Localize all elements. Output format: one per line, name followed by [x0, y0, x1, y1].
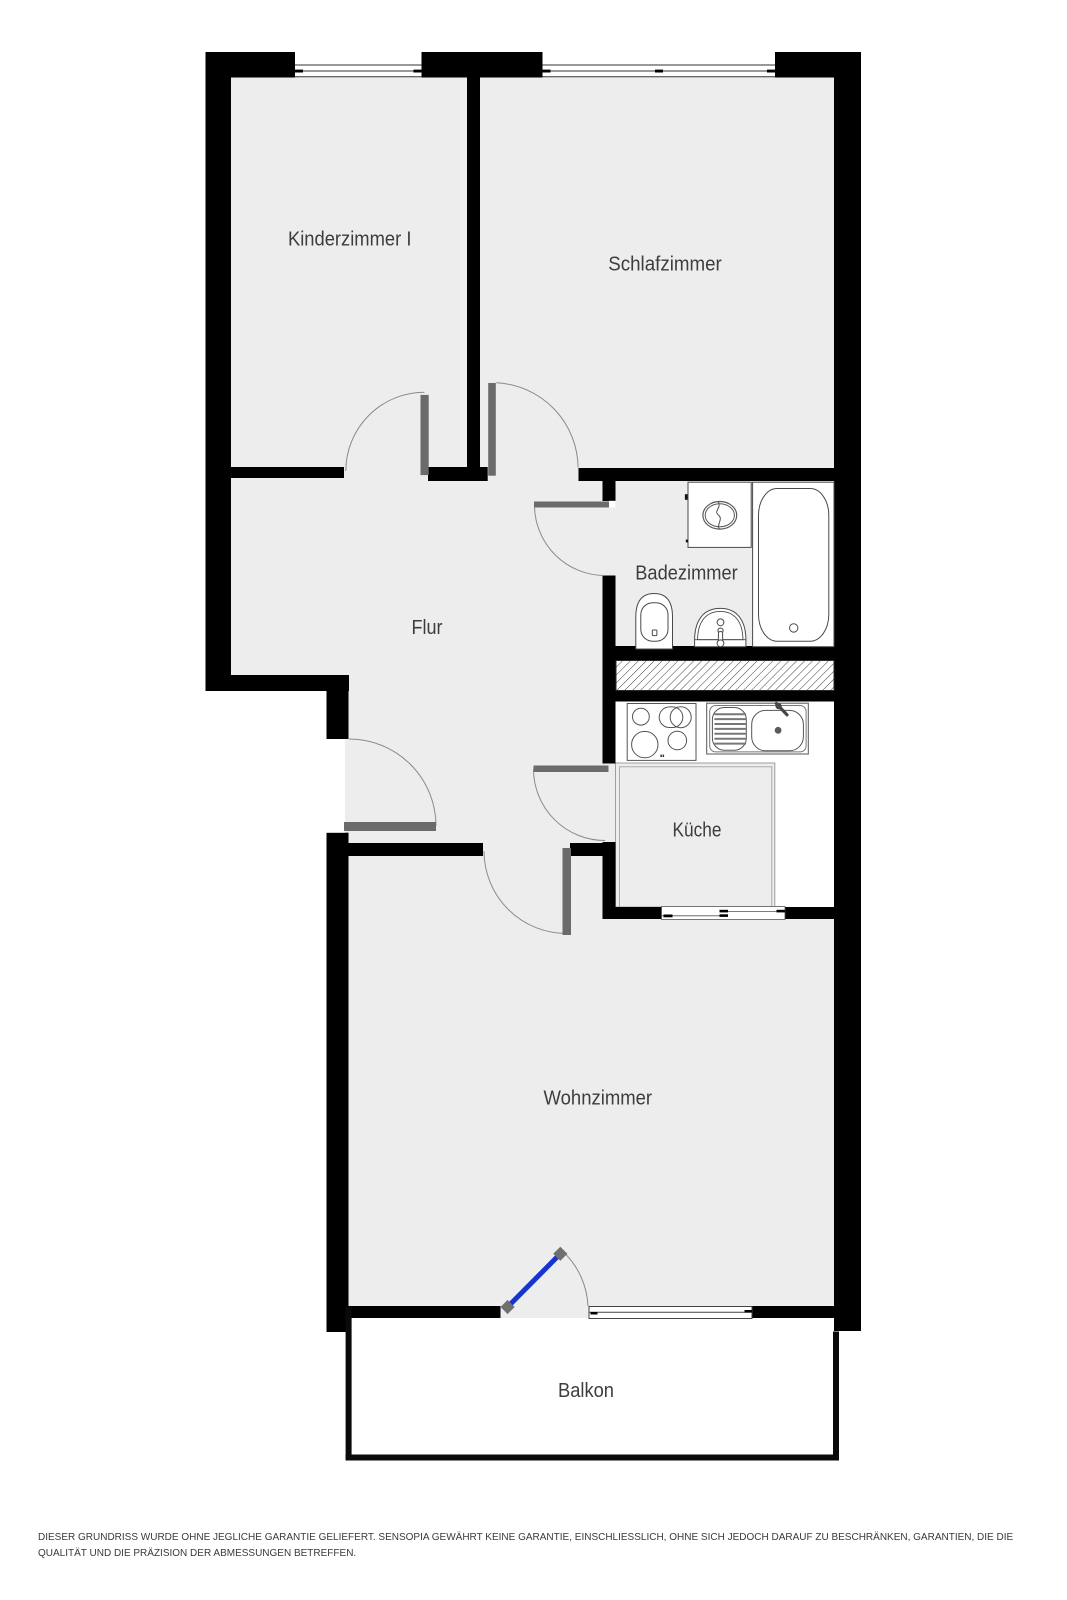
svg-text:Flur: Flur	[412, 616, 443, 639]
svg-text:Wohnzimmer: Wohnzimmer	[544, 1086, 653, 1109]
svg-text:Kinderzimmer I: Kinderzimmer I	[288, 228, 412, 251]
svg-text:DIESER GRUNDRISS WURDE OHNE JE: DIESER GRUNDRISS WURDE OHNE JEGLICHE GAR…	[38, 1531, 1014, 1543]
svg-text:Badezimmer: Badezimmer	[635, 562, 738, 585]
svg-text:Schlafzimmer: Schlafzimmer	[608, 253, 722, 276]
svg-text:Küche: Küche	[673, 819, 722, 842]
svg-text:QUALITÄT UND DIE PRÄZISION DER: QUALITÄT UND DIE PRÄZISION DER ABMESSUNG…	[38, 1547, 356, 1559]
svg-text:Balkon: Balkon	[558, 1379, 614, 1402]
